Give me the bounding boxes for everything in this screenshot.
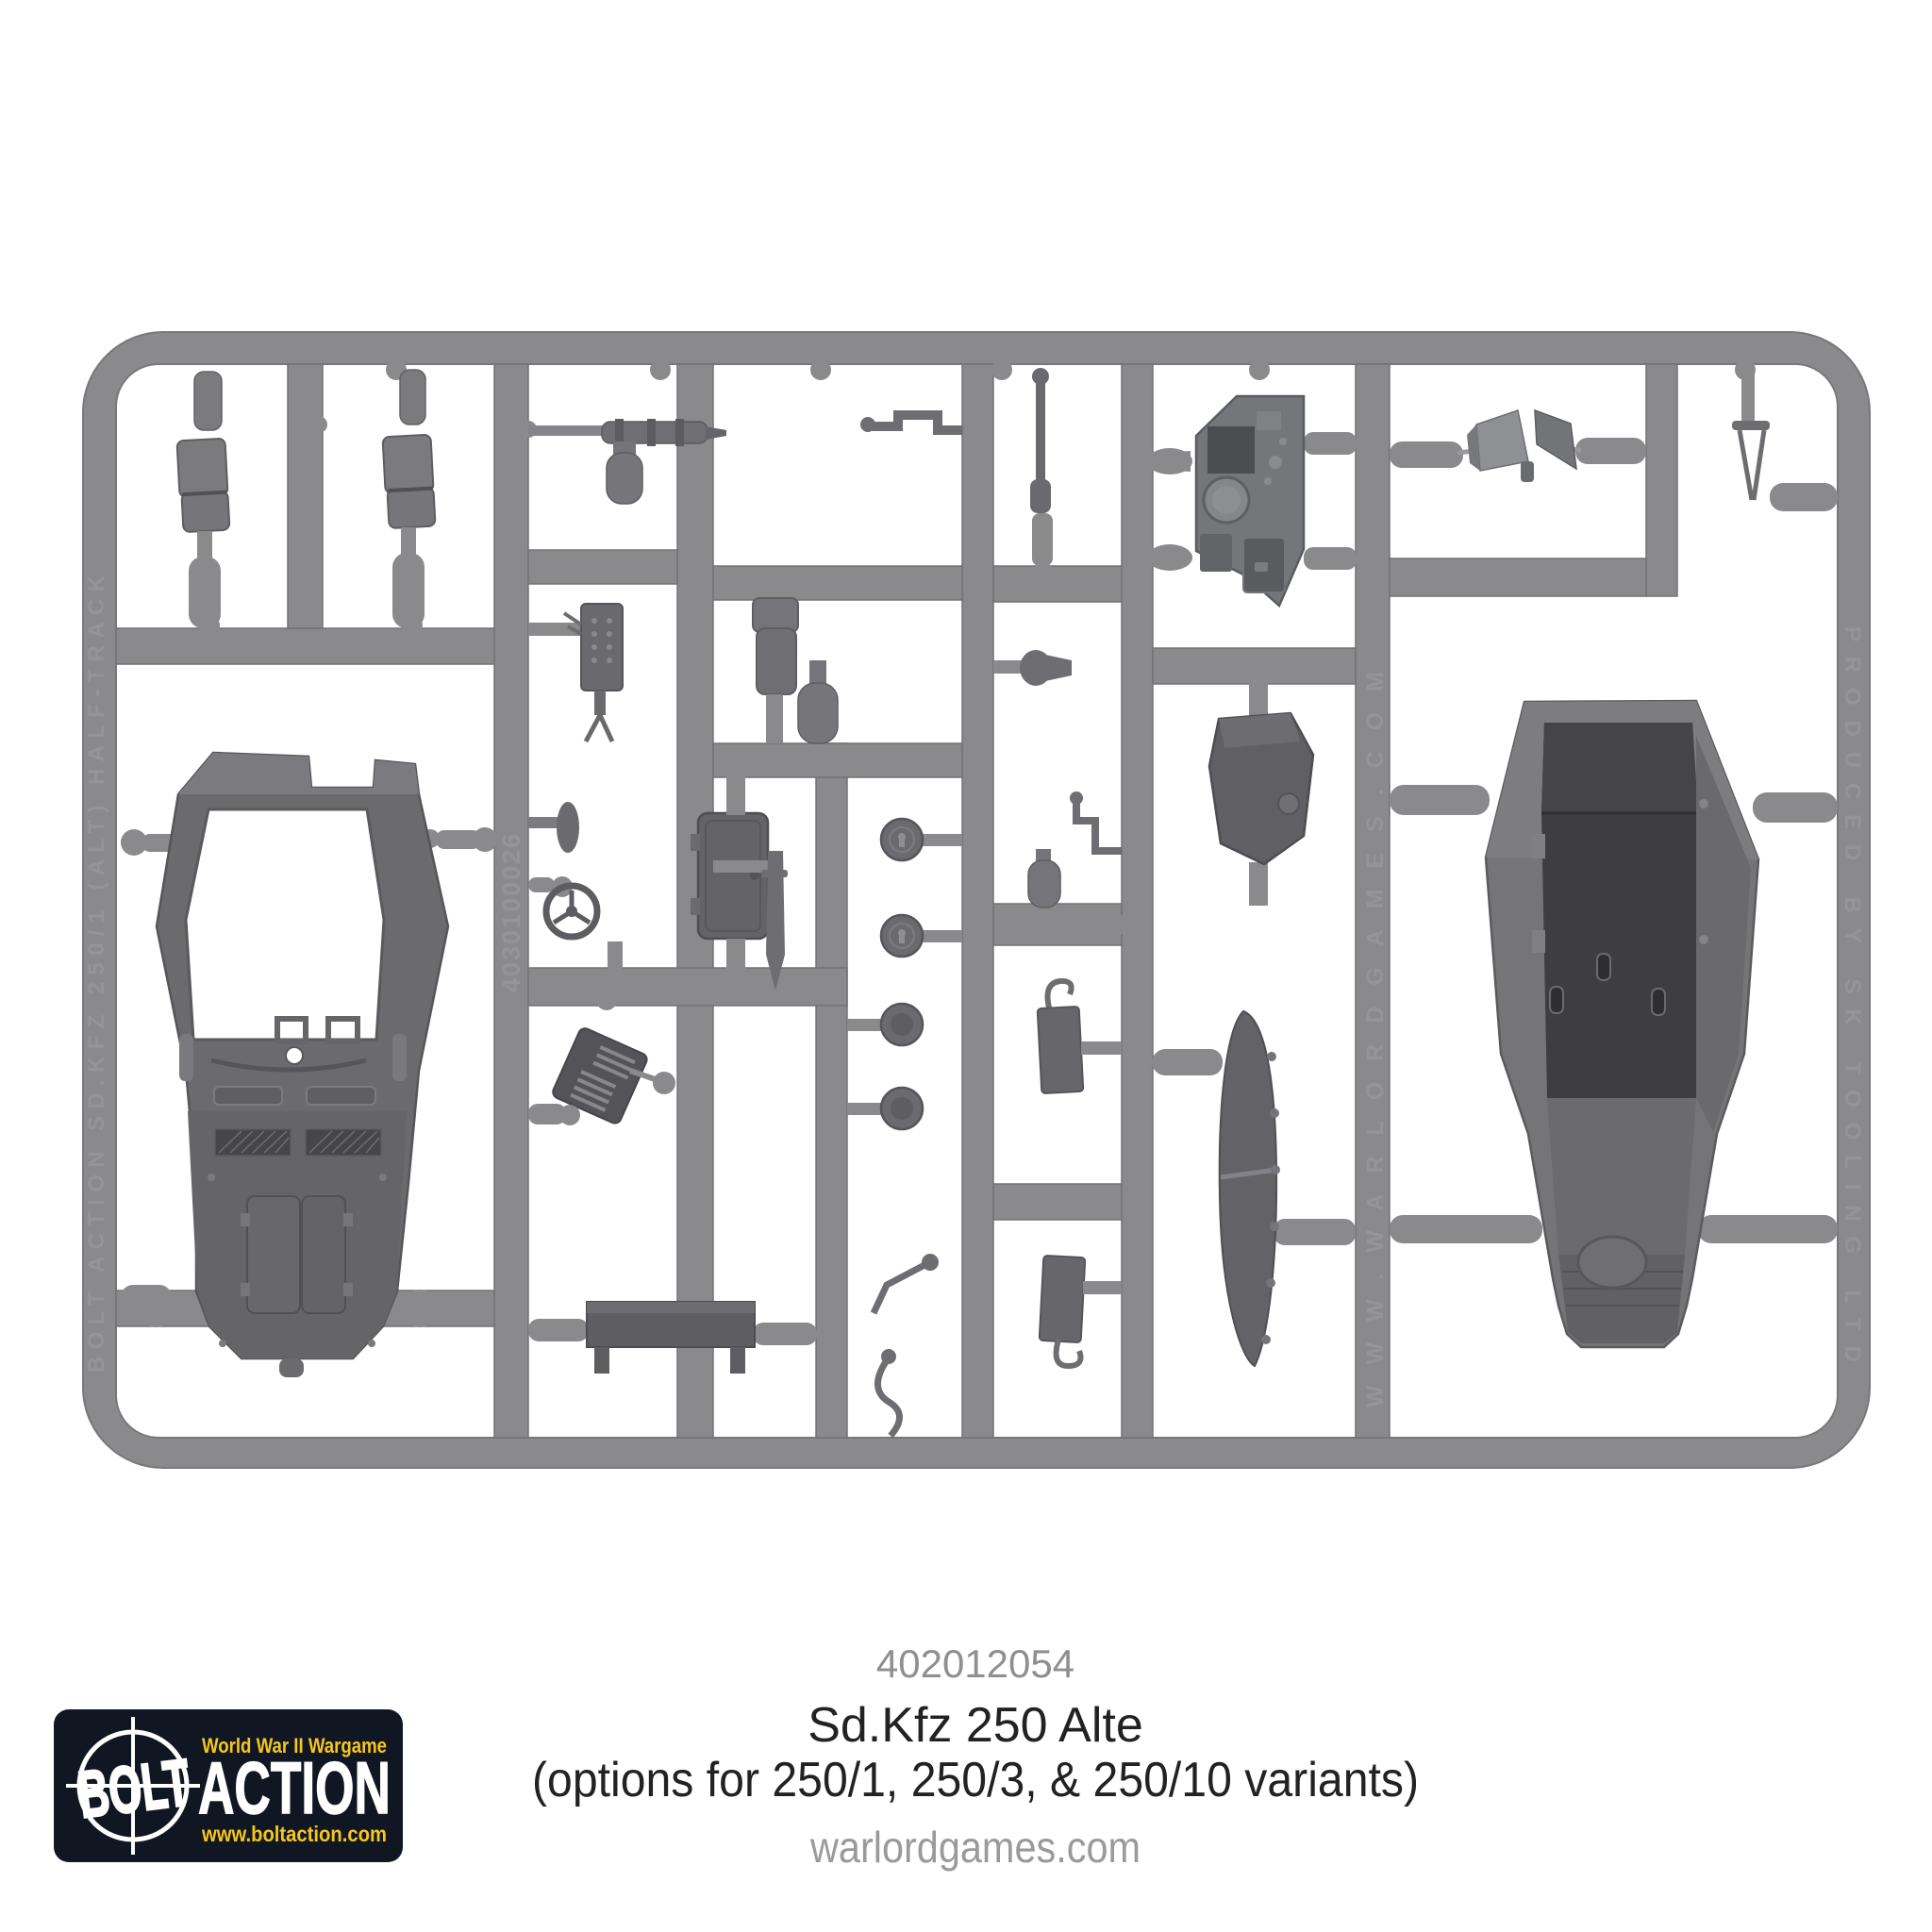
svg-text:warlordgames.com: warlordgames.com: [809, 1823, 1141, 1872]
svg-text:(options for 250/1, 250/3, & 2: (options for 250/1, 250/3, & 250/10 vari…: [532, 1753, 1419, 1807]
svg-text:Sd.Kfz 250 Alte: Sd.Kfz 250 Alte: [808, 1698, 1143, 1753]
svg-text:BOLT: BOLT: [75, 1745, 194, 1832]
svg-text:www.boltaction.com: www.boltaction.com: [201, 1822, 387, 1846]
svg-text:402012054: 402012054: [876, 1641, 1074, 1686]
svg-text:ACTION: ACTION: [198, 1746, 391, 1829]
svg-text:4030100026: 4030100026: [497, 832, 525, 992]
